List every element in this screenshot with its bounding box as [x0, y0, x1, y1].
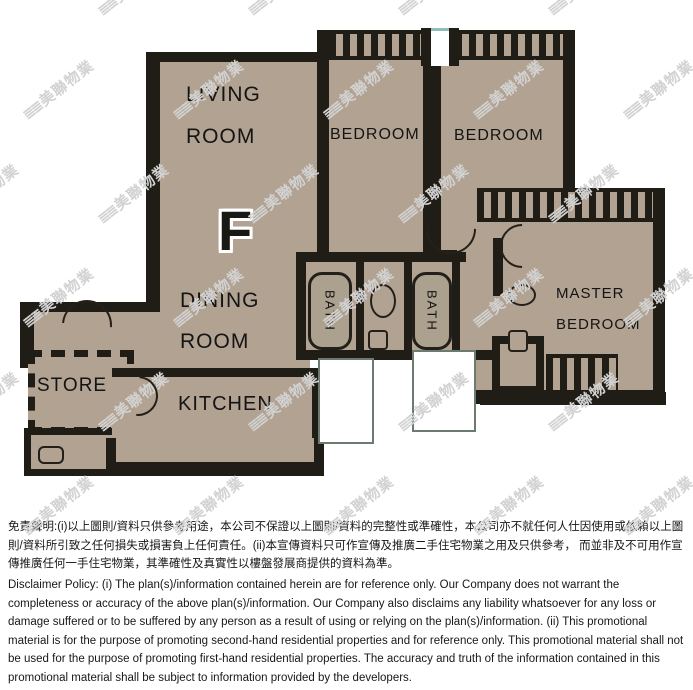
living-room-label-line2: ROOM [186, 126, 255, 147]
bath1-label: BATH [323, 290, 338, 332]
bedroom2-window-band [441, 30, 563, 60]
bedroom1-label: BEDROOM [330, 127, 420, 143]
notch-window [431, 28, 449, 31]
washbasin-icon [370, 284, 396, 318]
bathtub1: BATH [308, 272, 352, 350]
bath2-right-wall [452, 262, 460, 360]
master-bedroom-label-line2: BEDROOM [556, 317, 641, 332]
bedroom2-label: BEDROOM [454, 128, 544, 144]
disclaimer: 免責聲明:(i)以上圖則/資料只供參考用途，本公司不保證以上圖則/資料的完整性或… [8, 518, 687, 690]
unit-letter: F [218, 198, 252, 263]
kitchen-balcony-area [106, 438, 324, 476]
lightwell-1 [318, 358, 374, 444]
bath1-right-wall [356, 262, 364, 360]
dining-room-area [160, 270, 310, 370]
lightwell-2 [412, 350, 476, 432]
master-basin-icon [508, 284, 536, 306]
lavatory-basin-icon [38, 446, 64, 464]
bathtub2: BATH [412, 272, 452, 350]
dining-room-label-line2: ROOM [180, 331, 249, 352]
kitchen-label: KITCHEN [178, 394, 273, 414]
master-top-window-band [477, 188, 665, 222]
bath2-label: BATH [425, 290, 440, 332]
master-toilet-icon [508, 330, 528, 352]
floor-plan: BATH BATH LIVING ROOM F BEDROOM BEDROOM … [0, 0, 693, 515]
bay-notch [421, 28, 459, 66]
bath2-left-wall [404, 262, 412, 360]
bedroom1-window-band [329, 30, 423, 60]
master-bedroom-label-line1: MASTER [556, 286, 625, 301]
bedroom1-area [317, 30, 423, 270]
master-bottom-wall [480, 392, 666, 405]
disclaimer-zh: 免責聲明:(i)以上圖則/資料只供參考用途，本公司不保證以上圖則/資料的完整性或… [8, 518, 687, 574]
master-bottom-window-band [546, 354, 618, 394]
toilet1-icon [368, 330, 388, 350]
store-label: STORE [37, 376, 107, 395]
living-room-label-line1: LIVING [186, 84, 261, 105]
disclaimer-en: Disclaimer Policy: (i) The plan(s)/infor… [8, 576, 687, 688]
dining-room-label-line1: DINING [180, 290, 260, 311]
